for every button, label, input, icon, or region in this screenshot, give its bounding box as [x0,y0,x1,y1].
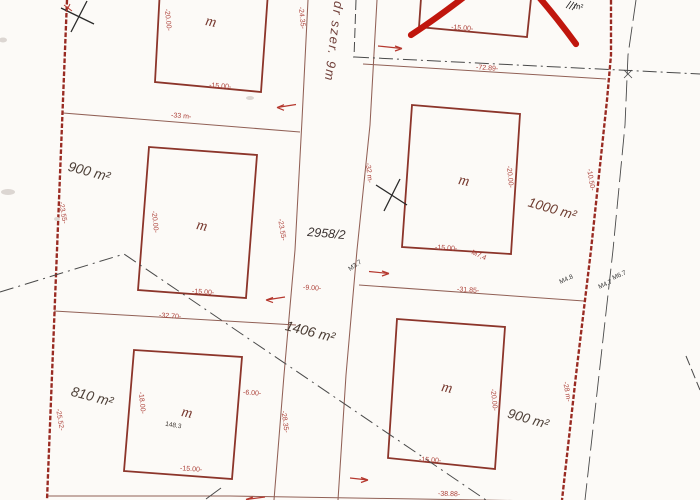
svg-text:-6.00-: -6.00- [243,389,262,397]
svg-text:-9.00-: -9.00- [303,284,322,292]
svg-text:-38.88-: -38.88- [438,491,461,499]
